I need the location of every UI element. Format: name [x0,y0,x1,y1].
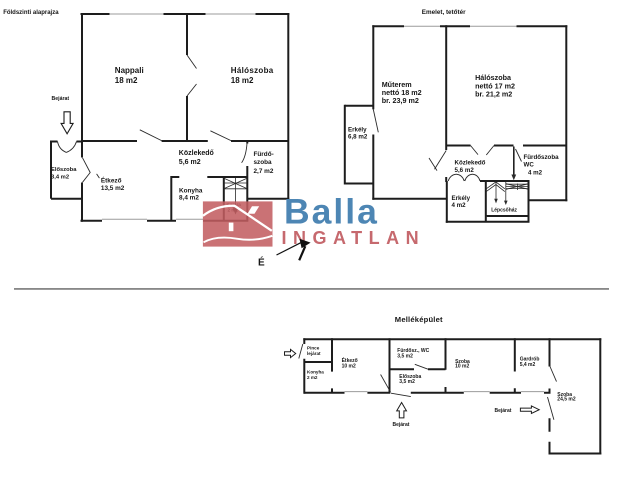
svg-text:Emelet, tetőtér: Emelet, tetőtér [422,9,466,16]
svg-text:4 m2: 4 m2 [452,202,467,209]
svg-text:3,5 m2: 3,5 m2 [399,379,415,385]
svg-text:Közlekedő: Közlekedő [179,150,214,157]
svg-text:WC: WC [524,162,535,169]
svg-text:2 m2: 2 m2 [307,375,318,380]
svg-text:Melléképület: Melléképület [395,315,443,324]
svg-text:8,4 m2: 8,4 m2 [179,195,199,202]
svg-text:18 m2: 18 m2 [231,76,254,85]
svg-text:Erkély: Erkély [452,195,471,202]
svg-text:lejárat: lejárat [307,351,321,356]
svg-text:6,8 m2: 6,8 m2 [348,134,368,141]
svg-text:Konyha: Konyha [179,187,203,194]
svg-text:szoba: szoba [254,159,273,166]
svg-text:3,5 m2: 3,5 m2 [397,354,413,360]
svg-text:10 m2: 10 m2 [342,363,356,369]
svg-text:Erkély: Erkély [348,127,367,134]
svg-text:10 m2: 10 m2 [455,364,469,370]
svg-text:5,6 m2: 5,6 m2 [455,167,475,174]
svg-text:5,6 m2: 5,6 m2 [179,159,201,166]
svg-text:Bejárat: Bejárat [393,422,410,428]
svg-text:Földszinti alaprajza: Földszinti alaprajza [3,10,59,16]
svg-text:Hálószoba: Hálószoba [231,66,274,75]
svg-text:Konyha: Konyha [307,370,324,375]
svg-text:br. 21,2 m2: br. 21,2 m2 [475,89,512,98]
svg-text:4 m2: 4 m2 [528,169,543,176]
svg-text:Közlekedő: Közlekedő [455,160,486,167]
svg-text:Lépcsőház: Lépcsőház [491,207,517,213]
svg-text:Bejárat: Bejárat [495,408,512,414]
svg-text:Nappali: Nappali [115,66,144,75]
svg-text:É: É [258,256,265,269]
svg-text:Balla: Balla [284,192,379,232]
svg-text:24,5 m2: 24,5 m2 [557,397,576,403]
svg-text:Pince: Pince [307,345,320,350]
svg-text:13,5 m2: 13,5 m2 [101,185,125,192]
svg-text:Előszoba: Előszoba [51,167,77,173]
svg-text:Bejárat: Bejárat [52,96,70,102]
svg-text:3,4 m2: 3,4 m2 [51,175,69,181]
svg-text:5,4 m2: 5,4 m2 [520,362,536,368]
svg-text:Fürdőszoba: Fürdőszoba [524,154,560,161]
svg-text:br. 23,9 m2: br. 23,9 m2 [382,96,419,105]
svg-text:Fürdő-: Fürdő- [254,151,274,158]
svg-text:18 m2: 18 m2 [115,76,138,85]
svg-text:2,7 m2: 2,7 m2 [254,168,274,175]
svg-text:Étkező: Étkező [101,175,122,184]
